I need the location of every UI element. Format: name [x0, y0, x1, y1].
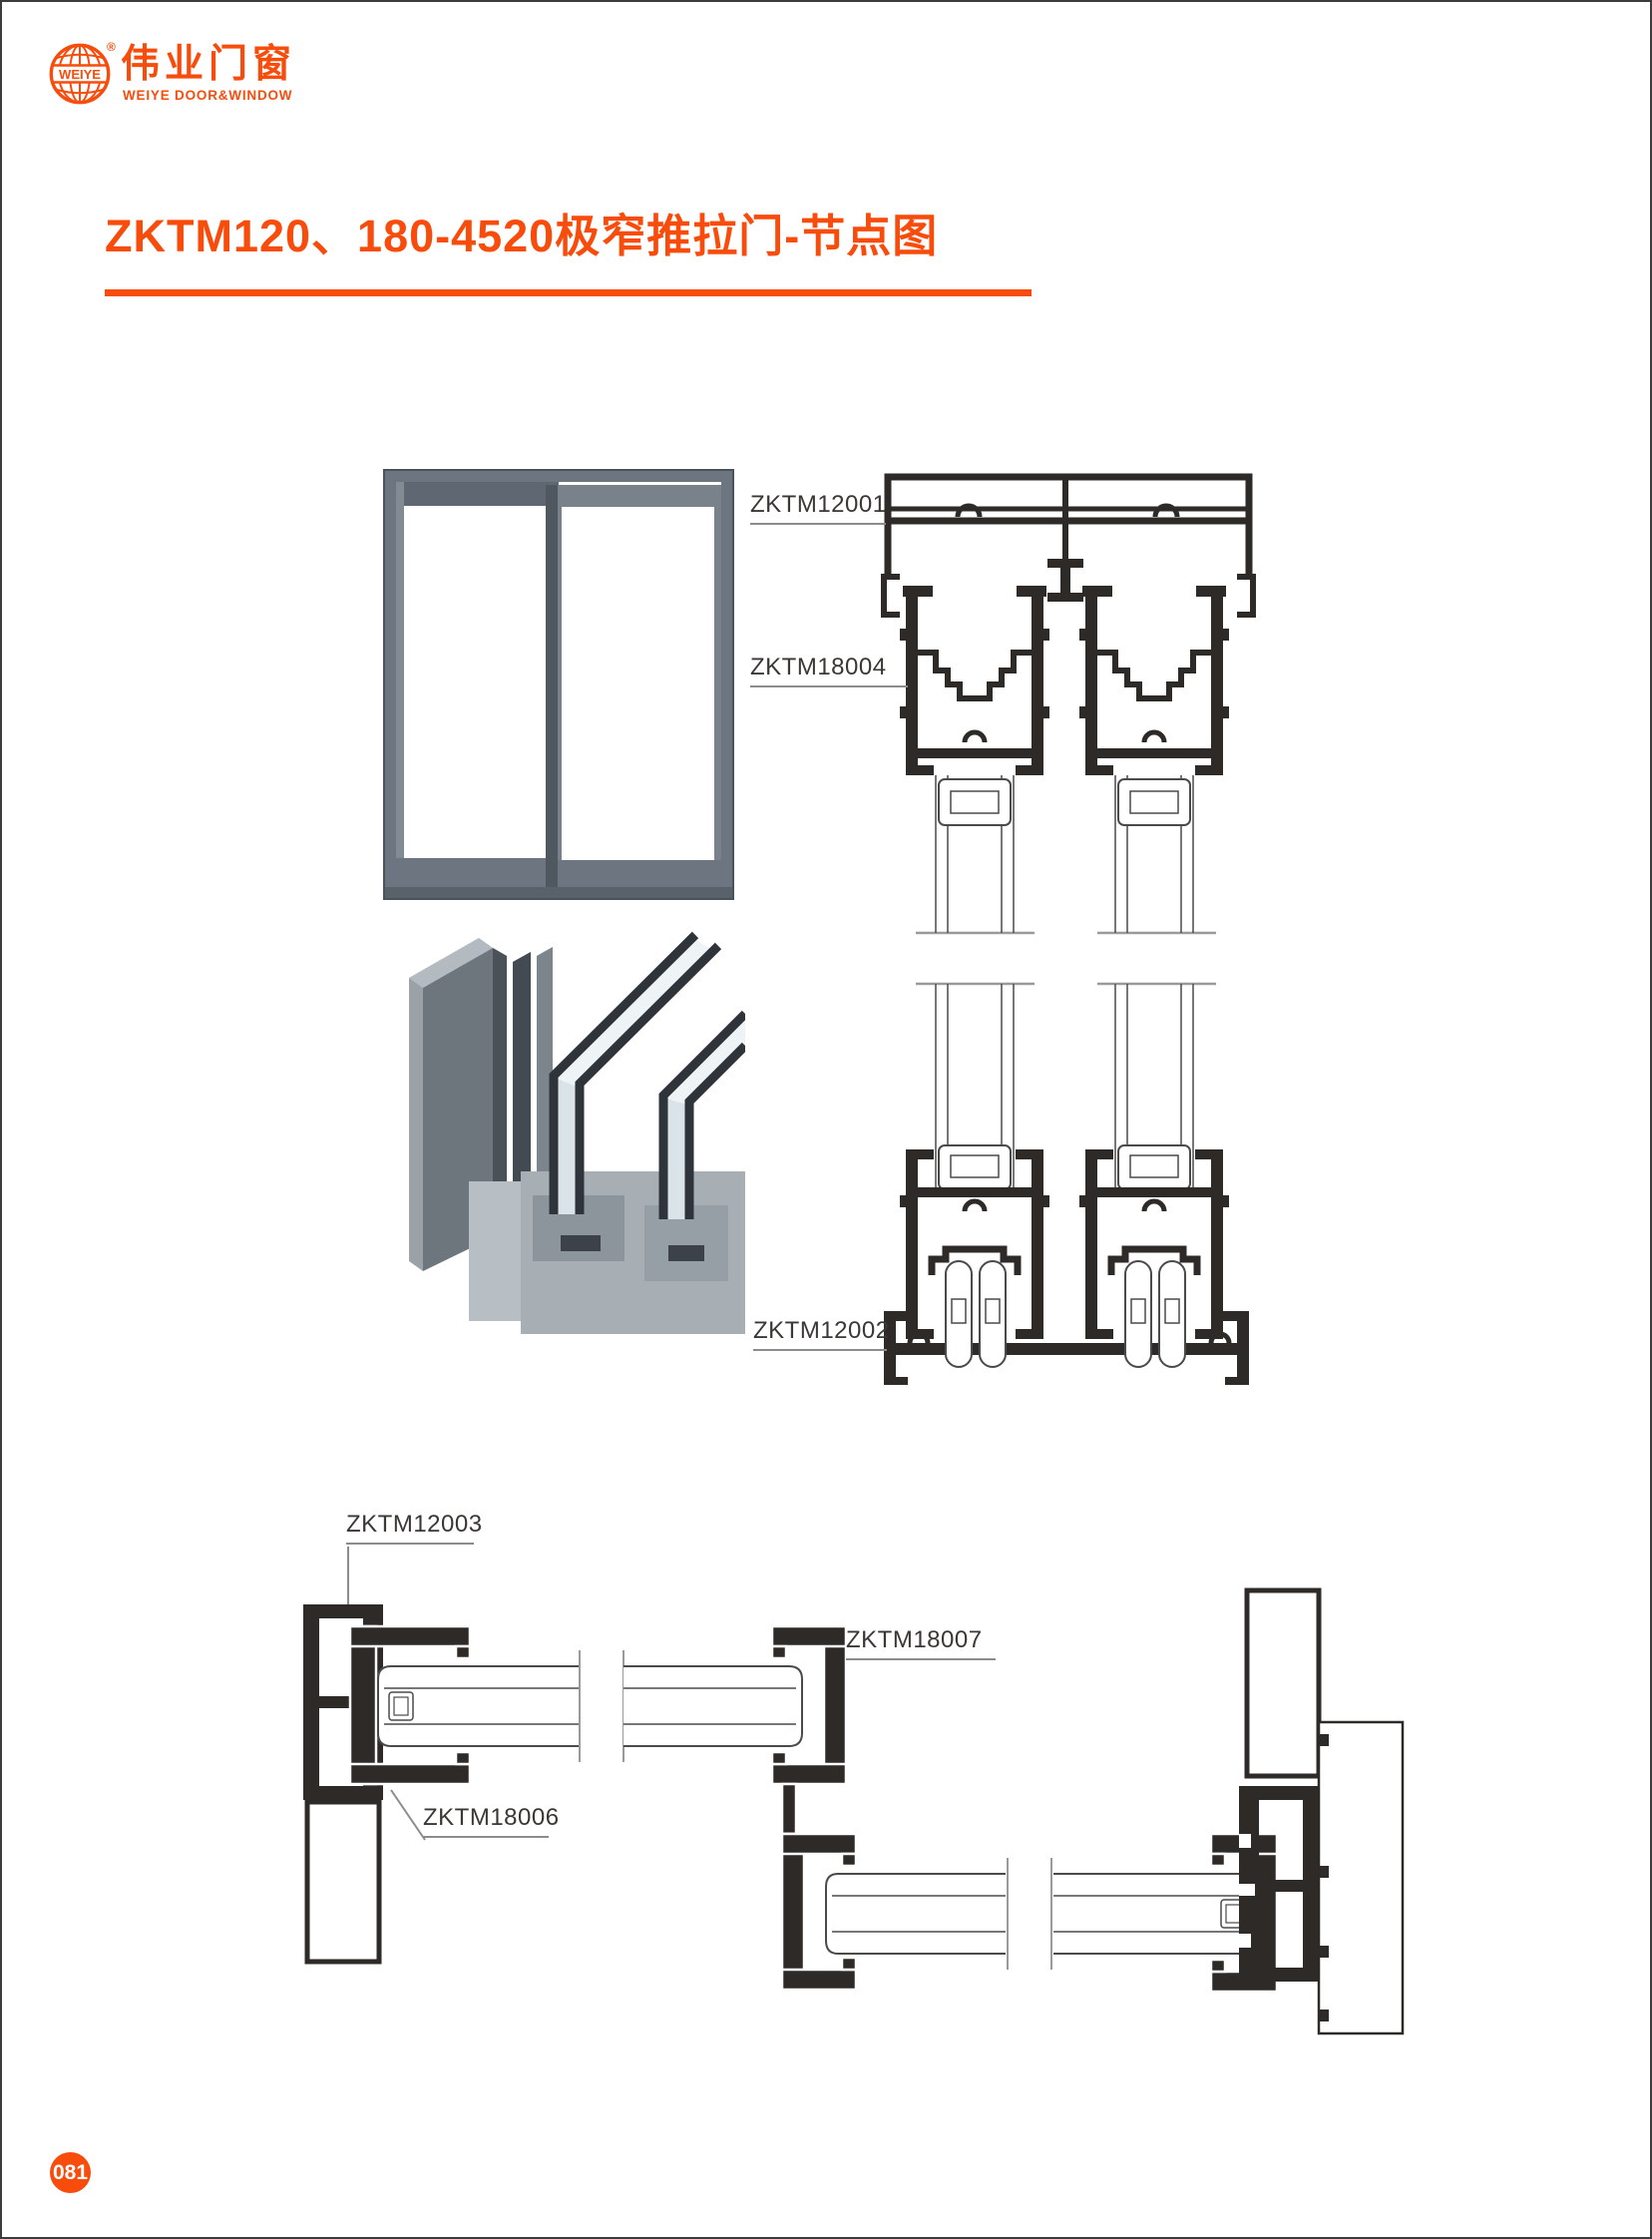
label-zktm18004: ZKTM18004	[750, 654, 908, 687]
label-zktm12001: ZKTM12001	[750, 491, 886, 525]
sliding-door-elevation	[381, 466, 736, 905]
globe-text: WEIYE	[59, 67, 101, 82]
vertical-node-section	[735, 321, 1269, 1409]
catalog-page: WEIYE ® 伟业门窗 WEIYE DOOR&WINDOW ZKTM120、1…	[0, 0, 1652, 2239]
page-number-badge: 081	[50, 2152, 91, 2193]
title-underline	[105, 289, 1032, 296]
label-zktm12002: ZKTM12002	[753, 1317, 887, 1351]
label-zktm18006: ZKTM18006	[423, 1804, 549, 1838]
registered-mark-icon: ®	[107, 40, 116, 54]
profile-3d-render	[401, 925, 745, 1339]
page-title: ZKTM120、180-4520极窄推拉门-节点图	[105, 200, 938, 264]
brand-name-cn: 伟业门窗	[121, 44, 296, 86]
label-zktm12003: ZKTM12003	[346, 1511, 474, 1545]
horizontal-node-section	[286, 1489, 1414, 2047]
brand-name-en: WEIYE DOOR&WINDOW	[123, 88, 292, 103]
label-zktm18007: ZKTM18007	[846, 1626, 996, 1660]
globe-icon: WEIYE	[48, 42, 112, 106]
